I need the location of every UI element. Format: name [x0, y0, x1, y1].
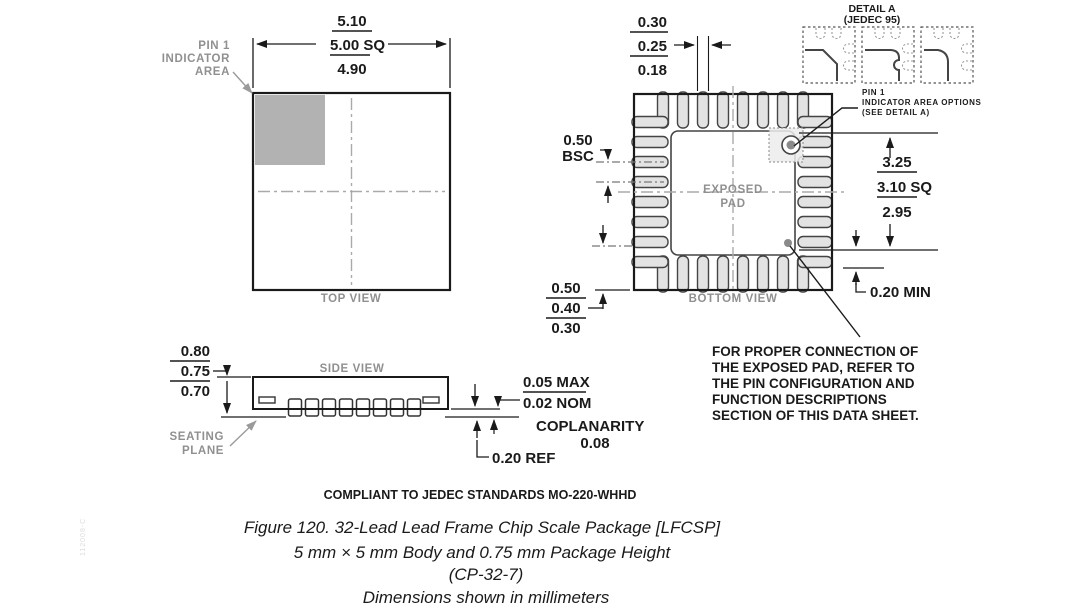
lead-width-dimension: 0.30 0.25 0.18: [630, 14, 731, 91]
pitch-value: 0.50: [563, 132, 592, 149]
top-view-label: TOP VIEW: [321, 293, 382, 305]
pin1-options-line1: PIN 1: [862, 88, 885, 97]
side-view-label: SIDE VIEW: [320, 363, 385, 375]
lead-length-min: 0.30: [551, 320, 580, 337]
pad-dim-max: 3.25: [882, 154, 911, 171]
standoff-max: 0.05 MAX: [523, 374, 590, 391]
pad-dim-min: 2.95: [882, 204, 911, 221]
coplanarity-label: COPLANARITY: [536, 418, 644, 435]
pin1-indicator-line1: PIN 1: [198, 40, 230, 52]
lead-length-max: 0.50: [551, 280, 580, 297]
drawing-revision-code: 112008-C: [80, 496, 94, 556]
pin1-options-callout: PIN 1 INDICATOR AREA OPTIONS (SEE DETAIL…: [862, 88, 981, 117]
top-view: TOP VIEW 5.10 5.00 SQ 4.90 PIN 1 INDICAT…: [162, 13, 450, 305]
package-outline-drawing: 112008-C TOP VIEW 5.10 5.00 SQ 4.90 PIN …: [0, 0, 1080, 608]
lead-length-dimension: 0.50 0.40 0.30: [546, 225, 632, 337]
detail-a: DETAIL A (JEDEC 95): [803, 3, 973, 83]
compliance-caption: COMPLIANT TO JEDEC STANDARDS MO-220-WHHD: [324, 488, 637, 502]
body-dim-min: 4.90: [337, 61, 366, 78]
figure-title: Figure 120. 32-Lead Lead Frame Chip Scal…: [244, 518, 722, 537]
note-line4: FUNCTION DESCRIPTIONS: [712, 392, 887, 407]
bottom-view: EXPOSED PAD BOTTOM VIEW: [618, 86, 860, 337]
exposed-pad-dot: [784, 239, 792, 247]
pad-keepout-dim: 0.20 MIN: [870, 284, 931, 301]
pin1-indicator-line2: INDICATOR: [162, 53, 230, 65]
body-dim-nom: 5.00 SQ: [330, 37, 385, 54]
figure-package-code: (CP-32-7): [449, 565, 524, 584]
note-line3: THE PIN CONFIGURATION AND: [712, 376, 915, 391]
pitch-bsc: BSC: [562, 148, 594, 165]
captions: COMPLIANT TO JEDEC STANDARDS MO-220-WHHD…: [244, 488, 722, 607]
pin1-options-line3: (SEE DETAIL A): [862, 108, 930, 117]
height-nom: 0.75: [181, 363, 210, 380]
pin1-indicator-area-shade: [255, 95, 325, 165]
seating-plane-label1: SEATING: [170, 431, 224, 443]
pad-dim-nom: 3.10 SQ: [877, 179, 932, 196]
note-line1: FOR PROPER CONNECTION OF: [712, 344, 918, 359]
standoff-dimension: 0.05 MAX 0.02 NOM COPLANARITY 0.08 0.20 …: [475, 374, 644, 467]
side-view: SIDE VIEW 0.80 0.75 0.70 SEATING P: [170, 343, 519, 457]
seating-plane-leader: [230, 421, 256, 446]
coplanarity-value: 0.08: [580, 435, 609, 452]
bottom-view-label: BOTTOM VIEW: [689, 293, 778, 305]
lead-length-nom: 0.40: [551, 300, 580, 317]
lead-width-nom: 0.25: [638, 38, 667, 55]
lead-thickness-dim: 0.20 REF: [492, 450, 555, 467]
seating-plane-label2: PLANE: [182, 445, 224, 457]
pin1-indicator-line3: AREA: [195, 66, 230, 78]
exposed-pad-note: FOR PROPER CONNECTION OF THE EXPOSED PAD…: [712, 344, 919, 423]
side-view-pins: [289, 399, 421, 416]
lead-width-max: 0.30: [638, 14, 667, 31]
standoff-nom: 0.02 NOM: [523, 395, 591, 412]
body-dim-max: 5.10: [337, 13, 366, 30]
exposed-pad-label1: EXPOSED: [703, 184, 763, 196]
note-line2: THE EXPOSED PAD, REFER TO: [712, 360, 915, 375]
height-min: 0.70: [181, 383, 210, 400]
pin1-indicator-leader: [233, 72, 252, 93]
lead-width-min: 0.18: [638, 62, 667, 79]
detail-a-corner-options: [805, 50, 948, 81]
detail-a-subtitle: (JEDEC 95): [844, 14, 901, 26]
figure-body-size: 5 mm × 5 mm Body and 0.75 mm Package Hei…: [294, 543, 672, 562]
pin1-options-line2: INDICATOR AREA OPTIONS: [862, 98, 981, 107]
exposed-pad-label2: PAD: [720, 198, 745, 210]
note-line5: SECTION OF THIS DATA SHEET.: [712, 408, 919, 423]
drawing-canvas: TOP VIEW 5.10 5.00 SQ 4.90 PIN 1 INDICAT…: [0, 0, 1080, 608]
height-max: 0.80: [181, 343, 210, 360]
figure-units: Dimensions shown in millimeters: [363, 588, 610, 607]
